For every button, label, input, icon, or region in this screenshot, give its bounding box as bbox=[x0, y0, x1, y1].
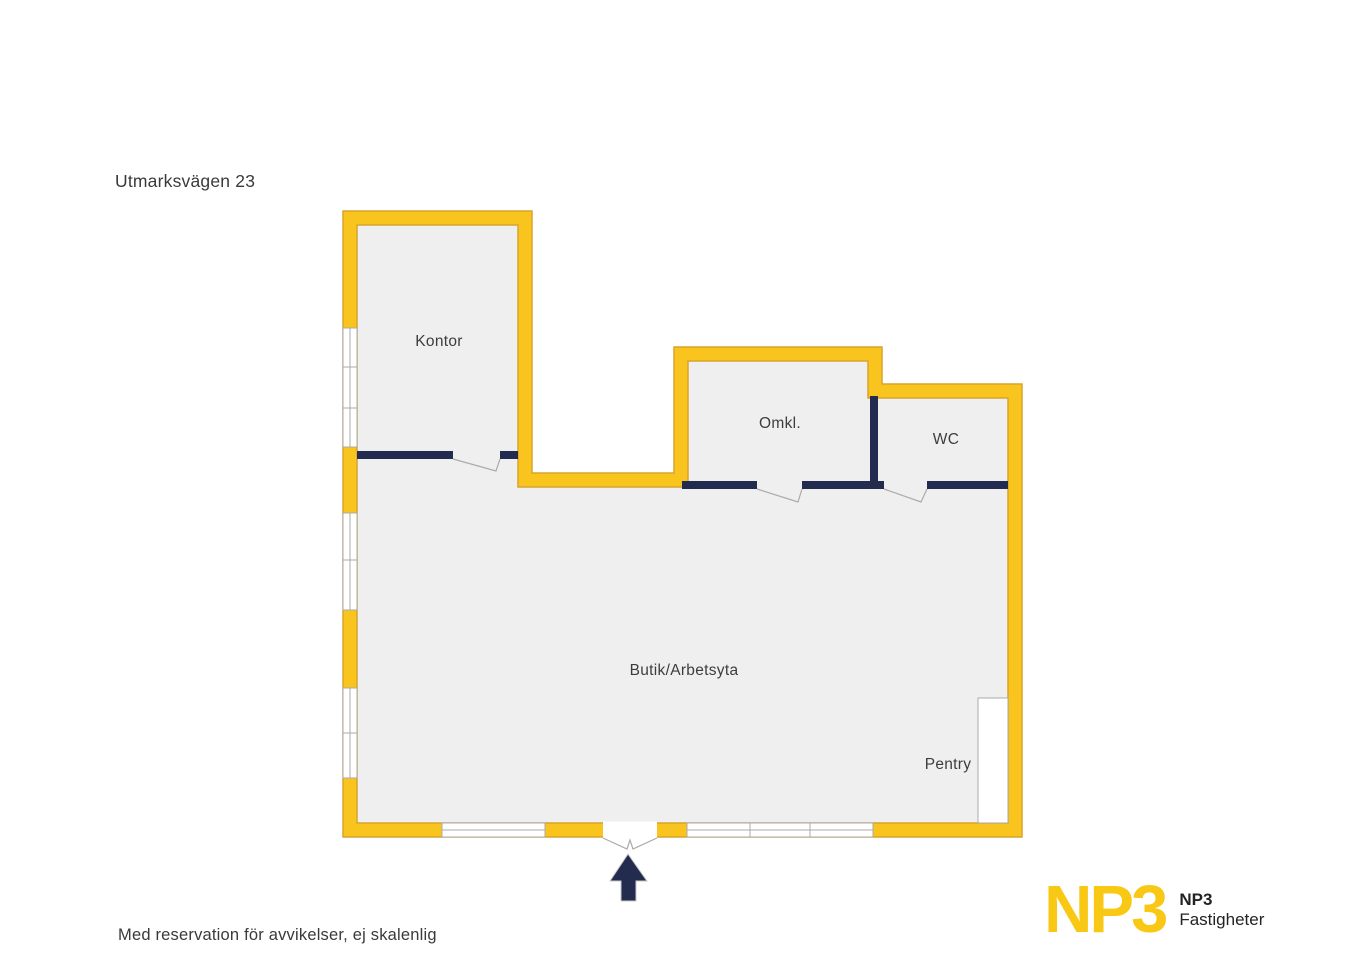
window-bottom-right bbox=[687, 823, 873, 837]
plan-title: Utmarksvägen 23 bbox=[115, 171, 255, 192]
window-butik-upper bbox=[343, 513, 357, 610]
wall-kontor-bottom bbox=[357, 451, 453, 459]
wall-wc-bottom bbox=[927, 481, 1008, 489]
wall-omkl-bottom-left bbox=[682, 481, 757, 489]
room-label-wc: WC bbox=[933, 431, 959, 449]
window-kontor bbox=[343, 328, 357, 447]
floorplan-drawing bbox=[0, 0, 1366, 966]
room-label-omkl: Omkl. bbox=[759, 415, 801, 433]
window-butik-lower bbox=[343, 688, 357, 778]
np3-logo-wordmark: NP3 bbox=[1044, 876, 1165, 943]
wall-omkl-wc-divider bbox=[870, 396, 878, 489]
floor-butik bbox=[357, 487, 1008, 823]
wall-kontor-bottom-stub bbox=[500, 451, 518, 459]
room-label-butik: Butik/Arbetsyta bbox=[630, 662, 739, 680]
door-entrance bbox=[603, 838, 657, 849]
floor-area bbox=[357, 225, 1008, 823]
room-label-kontor: Kontor bbox=[415, 333, 462, 351]
room-label-pentry: Pentry bbox=[925, 756, 972, 774]
windows-left-wall bbox=[343, 328, 357, 778]
np3-logo-text: NP3 Fastigheter bbox=[1179, 890, 1264, 929]
pentry-counter bbox=[978, 698, 1008, 823]
np3-logo: NP3 NP3 Fastigheter bbox=[1044, 876, 1264, 943]
np3-logo-subtitle: Fastigheter bbox=[1179, 910, 1264, 930]
np3-logo-name: NP3 bbox=[1179, 890, 1264, 910]
window-bottom-left bbox=[442, 823, 545, 837]
disclaimer-text: Med reservation för avvikelser, ej skale… bbox=[118, 926, 437, 945]
entrance-arrow-icon bbox=[610, 854, 647, 901]
entrance-opening bbox=[603, 822, 657, 839]
floorplan-page: Utmarksvägen 23 Kontor Omkl. WC Butik/Ar… bbox=[0, 0, 1366, 966]
